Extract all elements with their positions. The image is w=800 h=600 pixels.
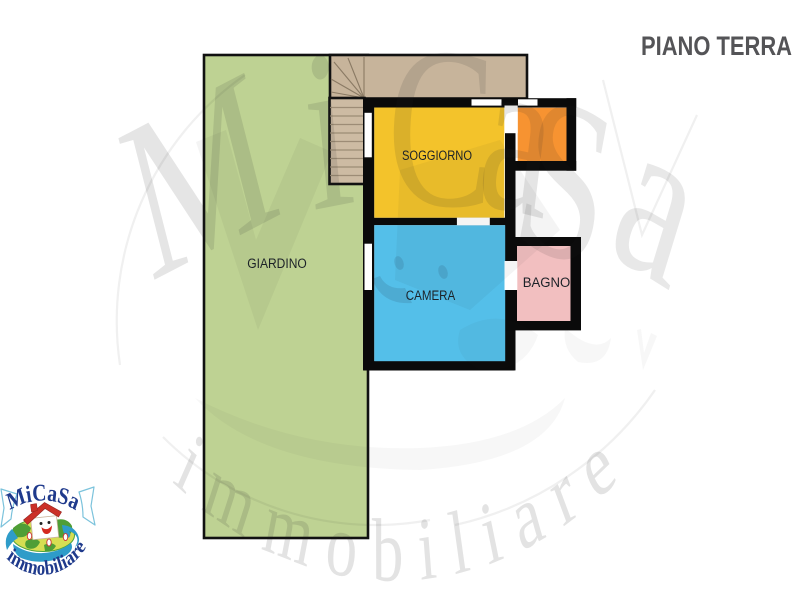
svg-text:PIANO TERRA: PIANO TERRA xyxy=(641,31,792,61)
